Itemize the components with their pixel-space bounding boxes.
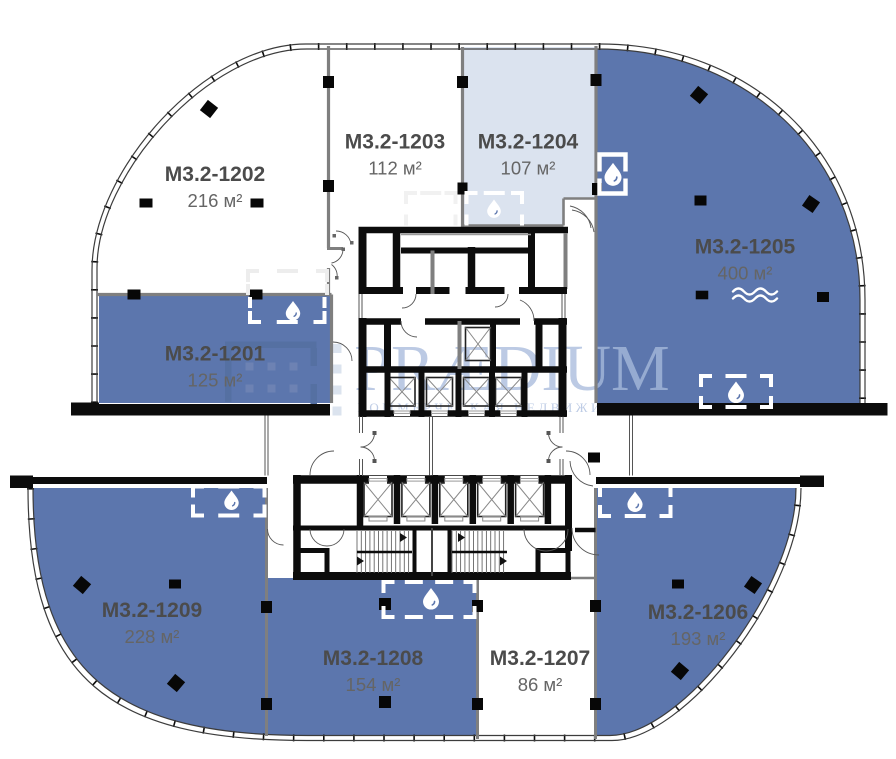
svg-text:400 м²: 400 м² bbox=[718, 263, 773, 284]
svg-text:М3.2-1208: М3.2-1208 bbox=[323, 647, 424, 670]
svg-text:107 м²: 107 м² bbox=[501, 158, 556, 179]
svg-text:М3.2-1207: М3.2-1207 bbox=[490, 647, 590, 670]
svg-text:М3.2-1206: М3.2-1206 bbox=[648, 601, 748, 624]
svg-text:228 м²: 228 м² bbox=[125, 626, 180, 647]
svg-text:М3.2-1201: М3.2-1201 bbox=[165, 343, 266, 366]
svg-text:М3.2-1205: М3.2-1205 bbox=[695, 236, 796, 259]
svg-text:125 м²: 125 м² bbox=[188, 370, 243, 391]
svg-text:216 м²: 216 м² bbox=[188, 190, 243, 211]
svg-text:86 м²: 86 м² bbox=[518, 674, 563, 695]
svg-text:193 м²: 193 м² bbox=[671, 628, 726, 649]
svg-text:М3.2-1204: М3.2-1204 bbox=[478, 131, 579, 154]
svg-text:М3.2-1202: М3.2-1202 bbox=[165, 163, 265, 186]
svg-text:М3.2-1203: М3.2-1203 bbox=[345, 131, 445, 154]
svg-text:154 м²: 154 м² bbox=[346, 674, 401, 695]
svg-text:М3.2-1209: М3.2-1209 bbox=[102, 599, 202, 622]
svg-text:112 м²: 112 м² bbox=[368, 158, 422, 179]
